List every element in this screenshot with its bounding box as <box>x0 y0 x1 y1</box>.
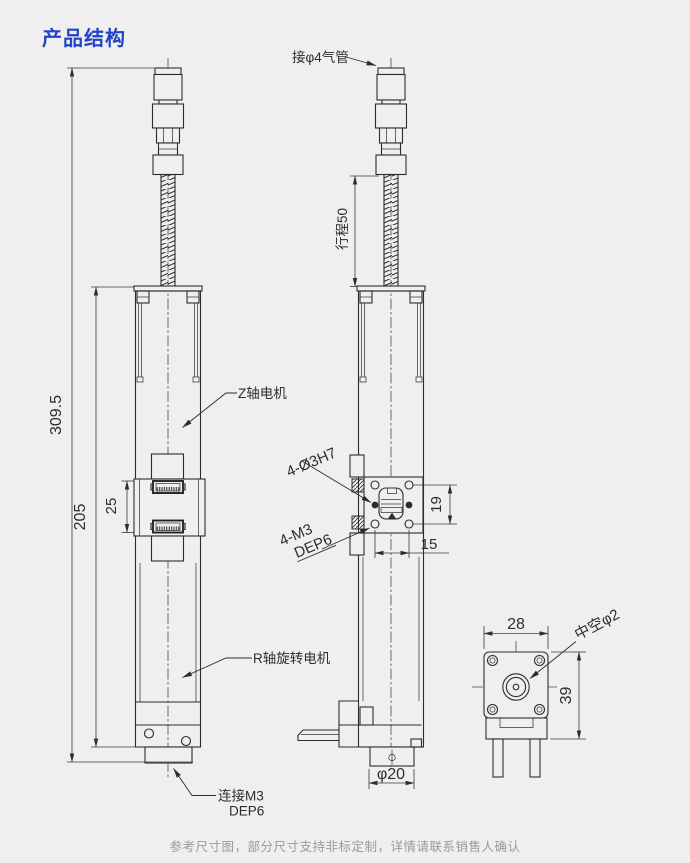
dim-39-text: 39 <box>558 687 575 705</box>
front-ball-screw <box>161 175 175 287</box>
side-mount-block <box>350 455 423 555</box>
front-bottom-hole-left <box>145 729 154 738</box>
footer-note: 参考尺寸图，部分尺寸支持非标定制，详情请联系销售人确认 <box>0 836 690 855</box>
mount-holes-ream-text: 4-Ø3H7 <box>284 445 339 481</box>
side-air-fitting <box>376 68 407 175</box>
label-r-axis-motor: R轴旋转电机 <box>183 651 331 678</box>
dim-hole-pitch-h: 15 <box>375 530 449 558</box>
motor-pin-right <box>530 739 540 777</box>
motor-pin-left <box>493 739 503 777</box>
motor-connector-lower <box>151 521 185 533</box>
dim-phi20-text: φ20 <box>377 766 405 783</box>
label-hollow-bore: 中空φ2 <box>530 606 622 679</box>
air-fitting-text: 接φ4气管 <box>292 49 349 65</box>
front-connector-block <box>134 454 205 561</box>
side-ball-screw <box>384 175 398 287</box>
dim-body-height: 205 <box>72 287 144 747</box>
pin-hole-right <box>406 502 413 509</box>
motor-lower-housing <box>486 718 547 739</box>
r-axis-motor-text: R轴旋转电机 <box>253 651 331 666</box>
dim-output-dia: φ20 <box>369 766 414 789</box>
label-air-fitting: 接φ4气管 <box>292 49 376 66</box>
dim-19-text: 19 <box>428 496 445 513</box>
label-bottom-thread: 连接M3 DEP6 <box>174 769 265 819</box>
motor-flange <box>484 652 548 718</box>
side-bottom <box>298 701 422 766</box>
bottom-thread-text-1: 连接M3 <box>218 788 264 804</box>
stroke-dim-text: 行程50 <box>335 208 350 250</box>
dim-connector-pitch: 25 <box>103 481 134 533</box>
dim-205-text: 205 <box>72 504 89 531</box>
front-air-fitting <box>153 68 184 175</box>
front-output-block <box>145 747 192 763</box>
motor-cable <box>298 730 339 741</box>
label-z-axis-motor: Z轴电机 <box>183 386 288 428</box>
hollow-bore-text: 中空φ2 <box>572 606 622 644</box>
dim-28-text: 28 <box>507 616 525 633</box>
dim-25-text: 25 <box>103 498 120 515</box>
dim-15-text: 15 <box>421 536 438 553</box>
pin-hole-left <box>372 502 379 509</box>
technical-drawing: 25 205 309.5 Z轴电机 R轴旋转电机 连接M3 DEP6 <box>0 0 690 863</box>
end-view <box>472 641 559 777</box>
dim-309-text: 309.5 <box>48 395 65 435</box>
motor-connector-upper <box>151 481 185 493</box>
front-bottom-hole-right <box>182 737 191 746</box>
z-axis-motor-text: Z轴电机 <box>238 386 287 401</box>
dim-stroke: 行程50 <box>335 176 379 287</box>
bottom-thread-text-2: DEP6 <box>229 804 264 819</box>
dim-motor-height: 39 <box>550 652 586 739</box>
